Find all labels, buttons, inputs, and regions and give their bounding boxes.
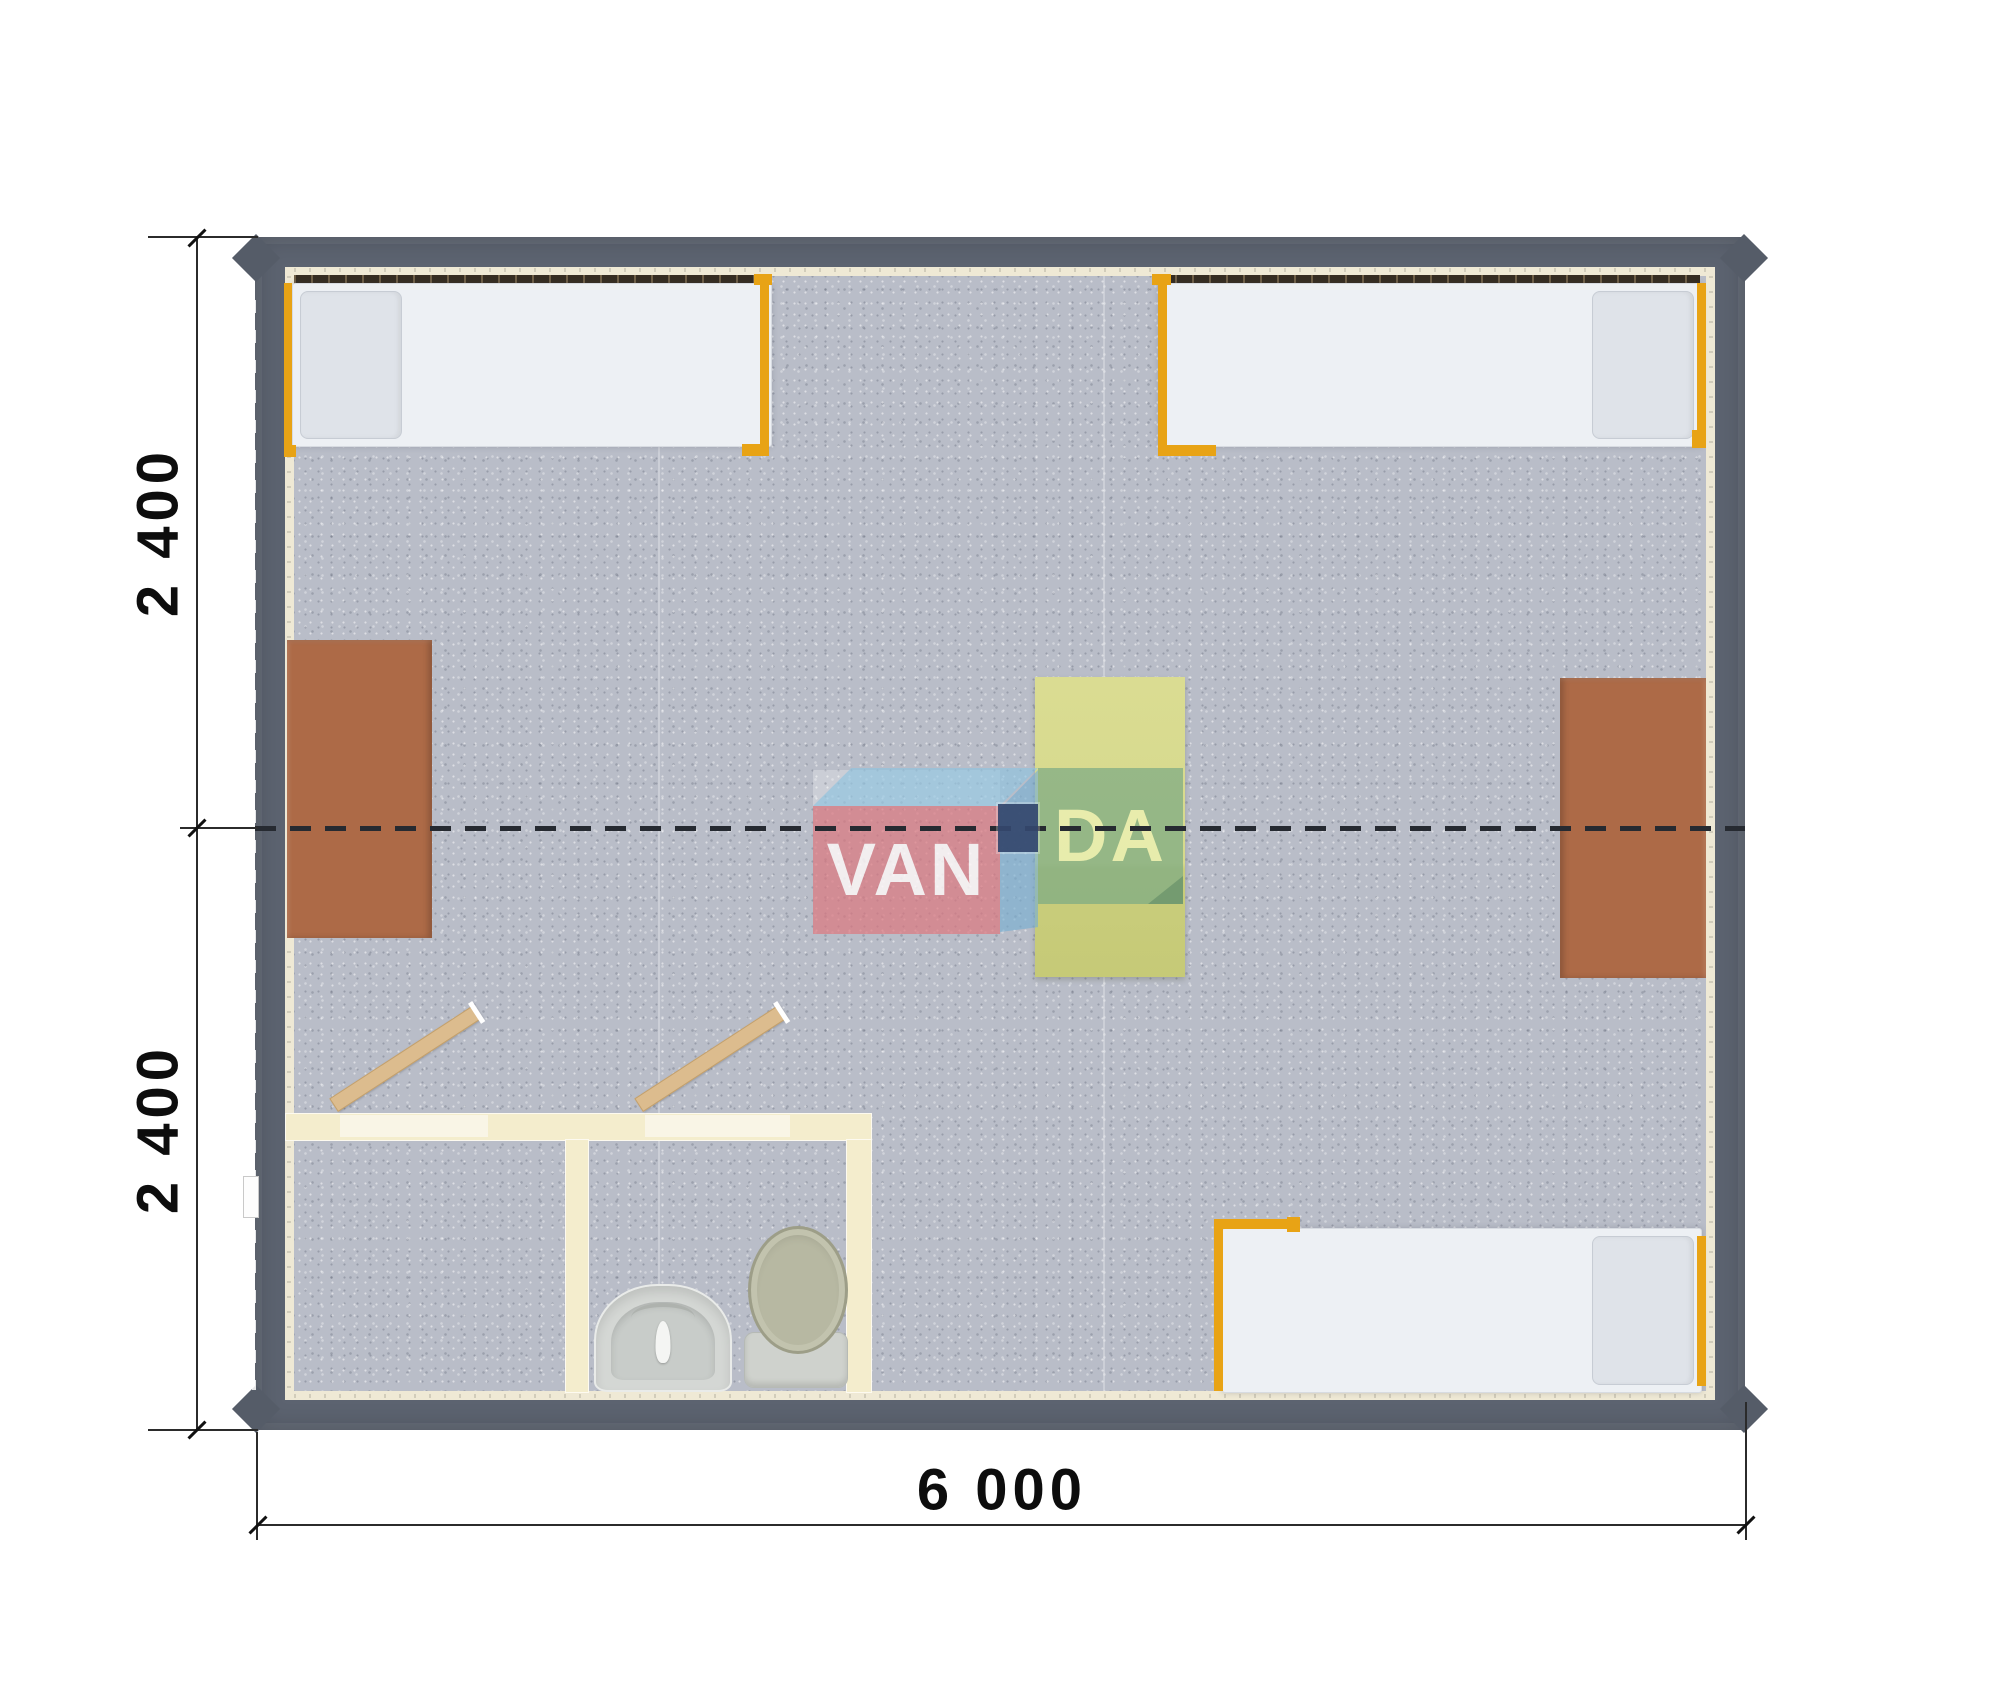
logo-text-da: DA xyxy=(1038,768,1183,904)
entrance-door-leaf xyxy=(243,1176,259,1218)
dim-extension-br xyxy=(1745,1402,1747,1540)
logo-van-label: VAN xyxy=(827,833,987,907)
bed-bottom-right-foot-rail xyxy=(1214,1228,1223,1391)
lining-ticks-bottom xyxy=(294,1394,1706,1398)
washbasin xyxy=(594,1284,732,1392)
bed-top-right-pillow xyxy=(1592,291,1694,439)
junction-connector-icon xyxy=(998,804,1038,852)
dim-extension-middle xyxy=(180,827,258,829)
faucet-icon xyxy=(656,1321,671,1363)
dim-line-bottom xyxy=(257,1524,1747,1526)
left-wall-cladding xyxy=(252,300,256,1390)
dim-line-left xyxy=(196,237,198,1430)
bed-frame-corner xyxy=(1152,274,1171,285)
desk-left xyxy=(287,640,432,938)
bed-top-left-foot-rail xyxy=(760,283,769,445)
logo-blue-roof xyxy=(813,768,1038,806)
bed-frame-corner xyxy=(1214,1219,1294,1229)
dim-label-width: 6 000 xyxy=(917,1457,1087,1524)
bed-top-right-foot-rail xyxy=(1158,283,1167,445)
floorplan-canvas: VAN DA 2 400 2 400 6 000 xyxy=(0,0,2000,1701)
bed-frame-corner xyxy=(284,445,296,457)
bed-top-left-head-rail xyxy=(284,283,292,445)
bed-frame-corner xyxy=(1692,430,1706,448)
bed-frame-corner xyxy=(1287,1217,1300,1232)
logo-da-label: DA xyxy=(1054,799,1167,873)
dim-extension-top xyxy=(148,236,258,238)
bed-frame-corner xyxy=(754,274,772,285)
lining-ticks-right xyxy=(1709,276,1713,1391)
bed-bottom-right-pillow xyxy=(1592,1236,1694,1385)
dim-label-height-top: 2 400 xyxy=(125,447,192,617)
dim-extension-bottom xyxy=(148,1429,258,1431)
lining-ticks-top xyxy=(294,268,1706,272)
bathroom-doorway-right xyxy=(645,1115,790,1137)
toilet xyxy=(748,1226,848,1354)
bathroom-side-wall xyxy=(846,1139,872,1393)
bed-top-left-pillow xyxy=(300,291,402,439)
bathroom-doorway-left xyxy=(340,1115,488,1137)
bed-frame-corner xyxy=(1158,445,1216,456)
bed-top-right-head-rail xyxy=(1697,283,1706,433)
dim-label-height-bottom: 2 400 xyxy=(125,1044,192,1214)
bed-frame-corner xyxy=(742,444,769,456)
bed-bottom-right-head-rail xyxy=(1697,1236,1706,1386)
bathroom-divider-wall xyxy=(565,1139,589,1393)
